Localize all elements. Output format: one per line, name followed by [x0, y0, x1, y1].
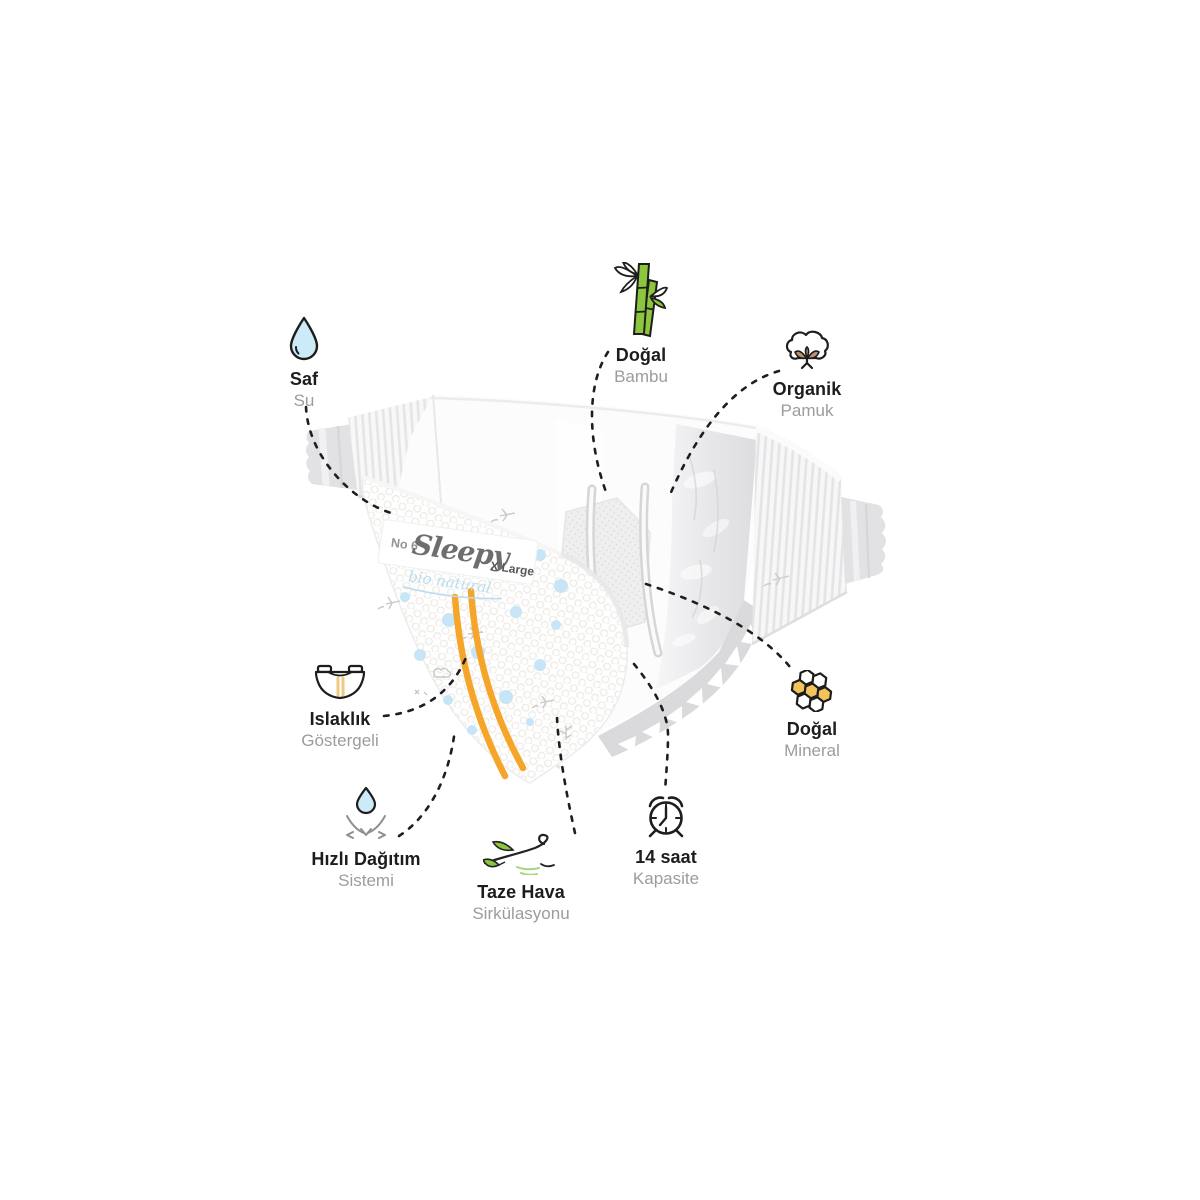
feature-subtitle: Sirkülasyonu [472, 904, 569, 924]
feature-subtitle: Sistemi [338, 871, 394, 891]
feature-title: Hızlı Dağıtım [311, 849, 420, 869]
feature-subtitle: Su [294, 391, 315, 411]
feature-title: Doğal [787, 719, 838, 739]
feature-title: Taze Hava [477, 882, 565, 902]
honeycomb-icon [789, 670, 835, 712]
feature-14-saat: 14 saat Kapasite [606, 794, 726, 889]
diaper-icon [313, 664, 367, 702]
feature-subtitle: Kapasite [633, 869, 699, 889]
feature-title: 14 saat [635, 847, 697, 867]
feature-title: Islaklık [310, 709, 371, 729]
right-wing-tab [841, 497, 886, 584]
alarm-clock-icon [644, 794, 688, 840]
product-infographic: No 6 Sleepy X Large bio natural Saf S [0, 0, 1200, 1200]
feature-saf-su: Saf Su [254, 316, 354, 411]
feature-title: Saf [290, 369, 318, 389]
cotton-icon [784, 330, 830, 372]
feature-title: Organik [773, 379, 842, 399]
wind-leaves-icon [483, 833, 559, 875]
feature-subtitle: Pamuk [781, 401, 834, 421]
feature-subtitle: Mineral [784, 741, 840, 761]
feature-dogal-mineral: Doğal Mineral [754, 670, 870, 761]
feature-hizli-dagitim: Hızlı Dağıtım Sistemi [291, 786, 441, 891]
diaper-illustration: No 6 Sleepy X Large bio natural [0, 0, 1200, 1200]
feature-islaklik-gostergeli: Islaklık Göstergeli [278, 664, 402, 751]
feature-organik-pamuk: Organik Pamuk [749, 330, 865, 421]
feature-subtitle: Göstergeli [301, 731, 378, 751]
bamboo-icon [613, 262, 669, 338]
water-drop-icon [288, 316, 320, 362]
feature-taze-hava: Taze Hava Sirkülasyonu [446, 833, 596, 924]
drop-absorb-arrows-icon [343, 786, 389, 842]
right-wing [752, 428, 847, 644]
feature-subtitle: Bambu [614, 367, 668, 387]
left-wing-tab [306, 424, 357, 490]
feature-title: Doğal [616, 345, 667, 365]
feature-dogal-bambu: Doğal Bambu [583, 262, 699, 387]
